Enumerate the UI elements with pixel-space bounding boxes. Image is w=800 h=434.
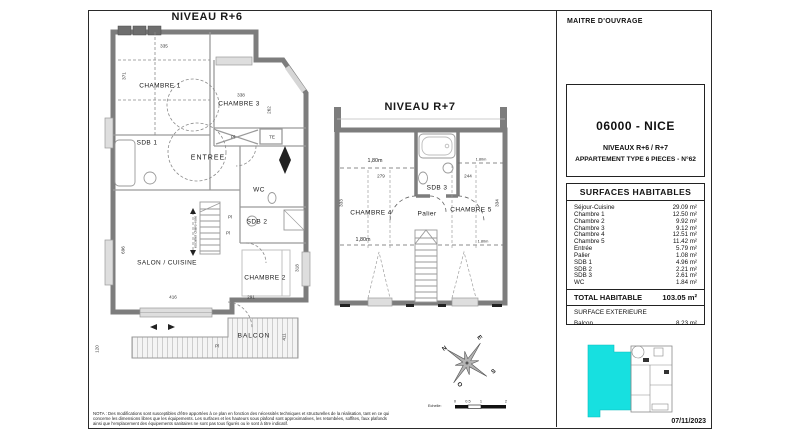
nota-disclaimer: NOTA : Des modifications sont susceptibl…: [93, 412, 395, 427]
plan-r6-walls: [105, 26, 310, 358]
closet-label-te: TE: [269, 135, 275, 140]
dim-279: 279: [377, 174, 385, 179]
key-plan: [588, 345, 672, 417]
room-label-sdb1: SDB 1: [137, 140, 158, 147]
closet-label-pl-1: Pl: [231, 135, 235, 140]
compass-rose-icon: [447, 343, 487, 383]
dim-334: 334: [495, 199, 500, 207]
dim-696: 696: [121, 246, 126, 254]
exterior-section: SURFACE EXTERIEURE Balcon 8.23 m²: [567, 305, 704, 327]
exterior-title: SURFACE EXTERIEURE: [574, 309, 697, 316]
project-levels: NIVEAUX R+6 / R+7: [567, 145, 704, 152]
room-label-chambre5: CHAMBRE 5: [450, 207, 492, 214]
scale-label: Echelle:: [428, 404, 442, 408]
stair-label-r6: escalier claire-voie: [193, 216, 198, 248]
scale-tick-1: 1: [480, 399, 482, 404]
row-value: 8.23 m²: [676, 320, 697, 327]
row-label: Balcon: [574, 320, 593, 327]
total-row: TOTAL HABITABLE 103.05 m²: [567, 289, 704, 305]
closet-label-pl-3: Pl: [226, 231, 230, 236]
drawing-sheet: NIVEAU R+6 CHAMBRE 1 CHAMBRE 3 SDB 1 ENT…: [0, 0, 800, 434]
surfaces-box: SURFACES HABITABLES Séjour-Cuisine29.09 …: [566, 183, 705, 325]
project-box: 06000 - NICE NIVEAUX R+6 / R+7 APPARTEME…: [566, 84, 705, 177]
plan-r7-title: NIVEAU R+7: [384, 101, 455, 113]
total-label: TOTAL HABITABLE: [574, 293, 642, 302]
room-label-salon-cuisine: SALON / CUISINE: [137, 260, 197, 267]
row-value: 1.84 m²: [676, 280, 697, 287]
scale-tick-2: 2: [505, 399, 507, 404]
room-label-chambre2: CHAMBRE 2: [244, 275, 286, 282]
owner-label: MAITRE D'OUVRAGE: [567, 18, 643, 25]
dim-416: 416: [169, 295, 177, 300]
height-line-label-4: 1.80m: [478, 239, 489, 244]
surfaces-table: Séjour-Cuisine29.09 m² Chambre 112.50 m²…: [567, 201, 704, 289]
room-label-chambre4: CHAMBRE 4: [350, 210, 392, 217]
room-label-palier: Palier: [417, 211, 436, 218]
scale-tick-0: 0: [454, 399, 456, 404]
scale-bar: [455, 405, 506, 409]
dim-338: 338: [237, 93, 245, 98]
room-label-entree: ENTREE: [191, 155, 225, 162]
closet-label-pl-2: Pl: [228, 215, 232, 220]
room-label-sdb2: SDB 2: [247, 219, 268, 226]
height-line-label-2: 1.80m: [476, 157, 487, 162]
row-label: WC: [574, 280, 584, 287]
total-value: 103.05 m²: [662, 293, 697, 302]
drawing-date: 07/11/2023: [600, 418, 706, 425]
dim-291: 291: [247, 295, 255, 300]
height-line-label-3: 1,80m: [356, 237, 371, 243]
project-apartment: APPARTEMENT TYPE 6 PIECES - N°62: [567, 156, 704, 163]
project-city: 06000 - NICE: [567, 119, 704, 133]
room-label-chambre1: CHAMBRE 1: [139, 83, 181, 90]
dim-318: 318: [295, 264, 300, 272]
room-label-balcon: BALCON: [238, 333, 271, 340]
table-row: WC1.84 m²: [574, 280, 697, 287]
dim-262: 262: [267, 106, 272, 114]
room-label-chambre3: CHAMBRE 3: [218, 101, 260, 108]
surfaces-title: SURFACES HABITABLES: [567, 184, 704, 201]
dim-411: 411: [282, 333, 287, 340]
plan-r6-title: NIVEAU R+6: [171, 11, 242, 23]
dim-371: 371: [122, 72, 127, 80]
dim-333: 333: [339, 199, 344, 207]
scale-tick-05: 0.5: [465, 399, 470, 404]
table-row: Balcon 8.23 m²: [574, 320, 697, 327]
dim-244: 244: [464, 174, 472, 179]
closet-label-pl-4: Pl: [215, 344, 219, 349]
dim-335: 335: [160, 44, 168, 49]
room-label-sdb3: SDB 3: [427, 185, 448, 192]
height-line-label-1: 1,80m: [368, 158, 383, 164]
room-label-wc: WC: [253, 187, 265, 194]
dim-120: 120: [95, 345, 100, 353]
